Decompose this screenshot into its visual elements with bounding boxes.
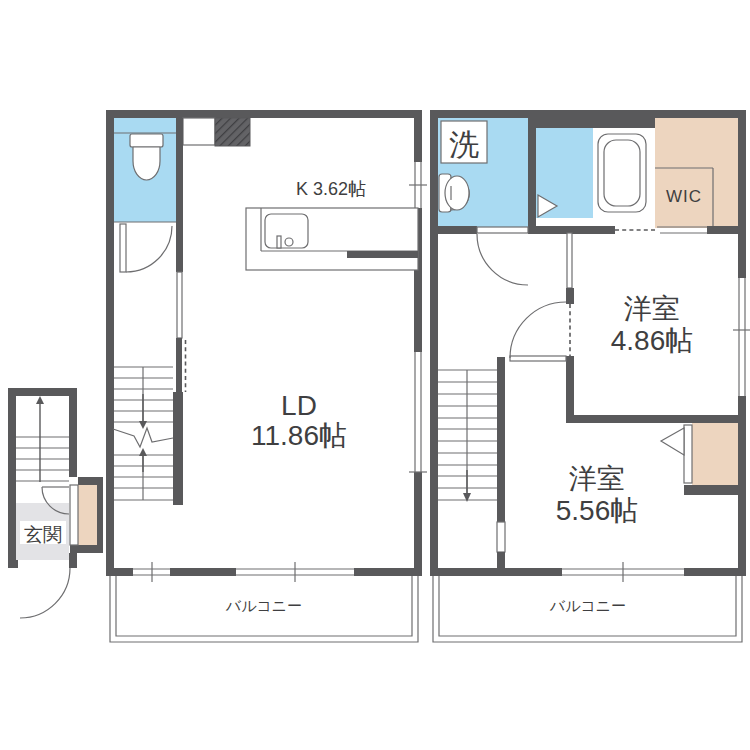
inner-wall (176, 118, 183, 272)
bedroom1-door (510, 302, 566, 361)
floor-plan-drawing: K 3.62帖 LD 11.86帖 (0, 0, 750, 750)
window (409, 352, 427, 472)
wic-label: WIC (666, 187, 702, 206)
living-label: LD (281, 390, 317, 421)
window (409, 162, 427, 208)
window (133, 562, 170, 582)
first-floor-plan: K 3.62帖 LD 11.86帖 (106, 110, 427, 582)
bedroom2-label: 洋室 (569, 463, 625, 494)
window (733, 278, 750, 396)
living-size-label: 11.86帖 (251, 420, 347, 451)
counter-half-wall (347, 251, 418, 258)
half-wall (567, 233, 572, 288)
balcony-floor1: バルコニー (110, 576, 418, 642)
bedroom2-door (497, 522, 505, 552)
staircase-floor2 (438, 370, 497, 502)
staircase-entrance (16, 396, 69, 482)
half-wall (177, 272, 182, 338)
toilet-icon (439, 174, 469, 212)
balcony1-label: バルコニー (225, 597, 302, 614)
window (236, 562, 354, 582)
bedroom1-size-label: 4.86帖 (611, 325, 694, 356)
shoe-cabinet (70, 477, 103, 553)
laundry-label: 洗 (449, 128, 479, 161)
floor-plan-canvas: K 3.62帖 LD 11.86帖 (0, 0, 750, 750)
kitchen-label: K 3.62帖 (296, 179, 366, 199)
balcony2-label: バルコニー (549, 597, 626, 614)
bathtub-icon (598, 134, 646, 212)
kitchen-counter (246, 208, 418, 270)
toilet-door (120, 224, 172, 272)
washroom-door (477, 227, 528, 285)
bedroom1-label: 洋室 (624, 293, 680, 324)
wic-room (655, 118, 738, 228)
entrance-label: 玄関 (24, 524, 62, 545)
entrance-block: 玄関 (8, 388, 103, 618)
balcony-floor2: バルコニー (433, 576, 742, 642)
bedroom2-closet (692, 423, 740, 485)
bedroom2-size-label: 5.56帖 (556, 495, 639, 526)
faucet (277, 236, 281, 248)
stair-break-line (113, 428, 173, 447)
closet-door (661, 425, 692, 483)
hatched-pillar (215, 118, 250, 146)
window (562, 562, 684, 582)
wall-niche (183, 118, 215, 145)
staircase-floor1 (113, 367, 173, 500)
second-floor-plan: 洗 WIC (430, 110, 750, 582)
front-door (20, 568, 70, 618)
